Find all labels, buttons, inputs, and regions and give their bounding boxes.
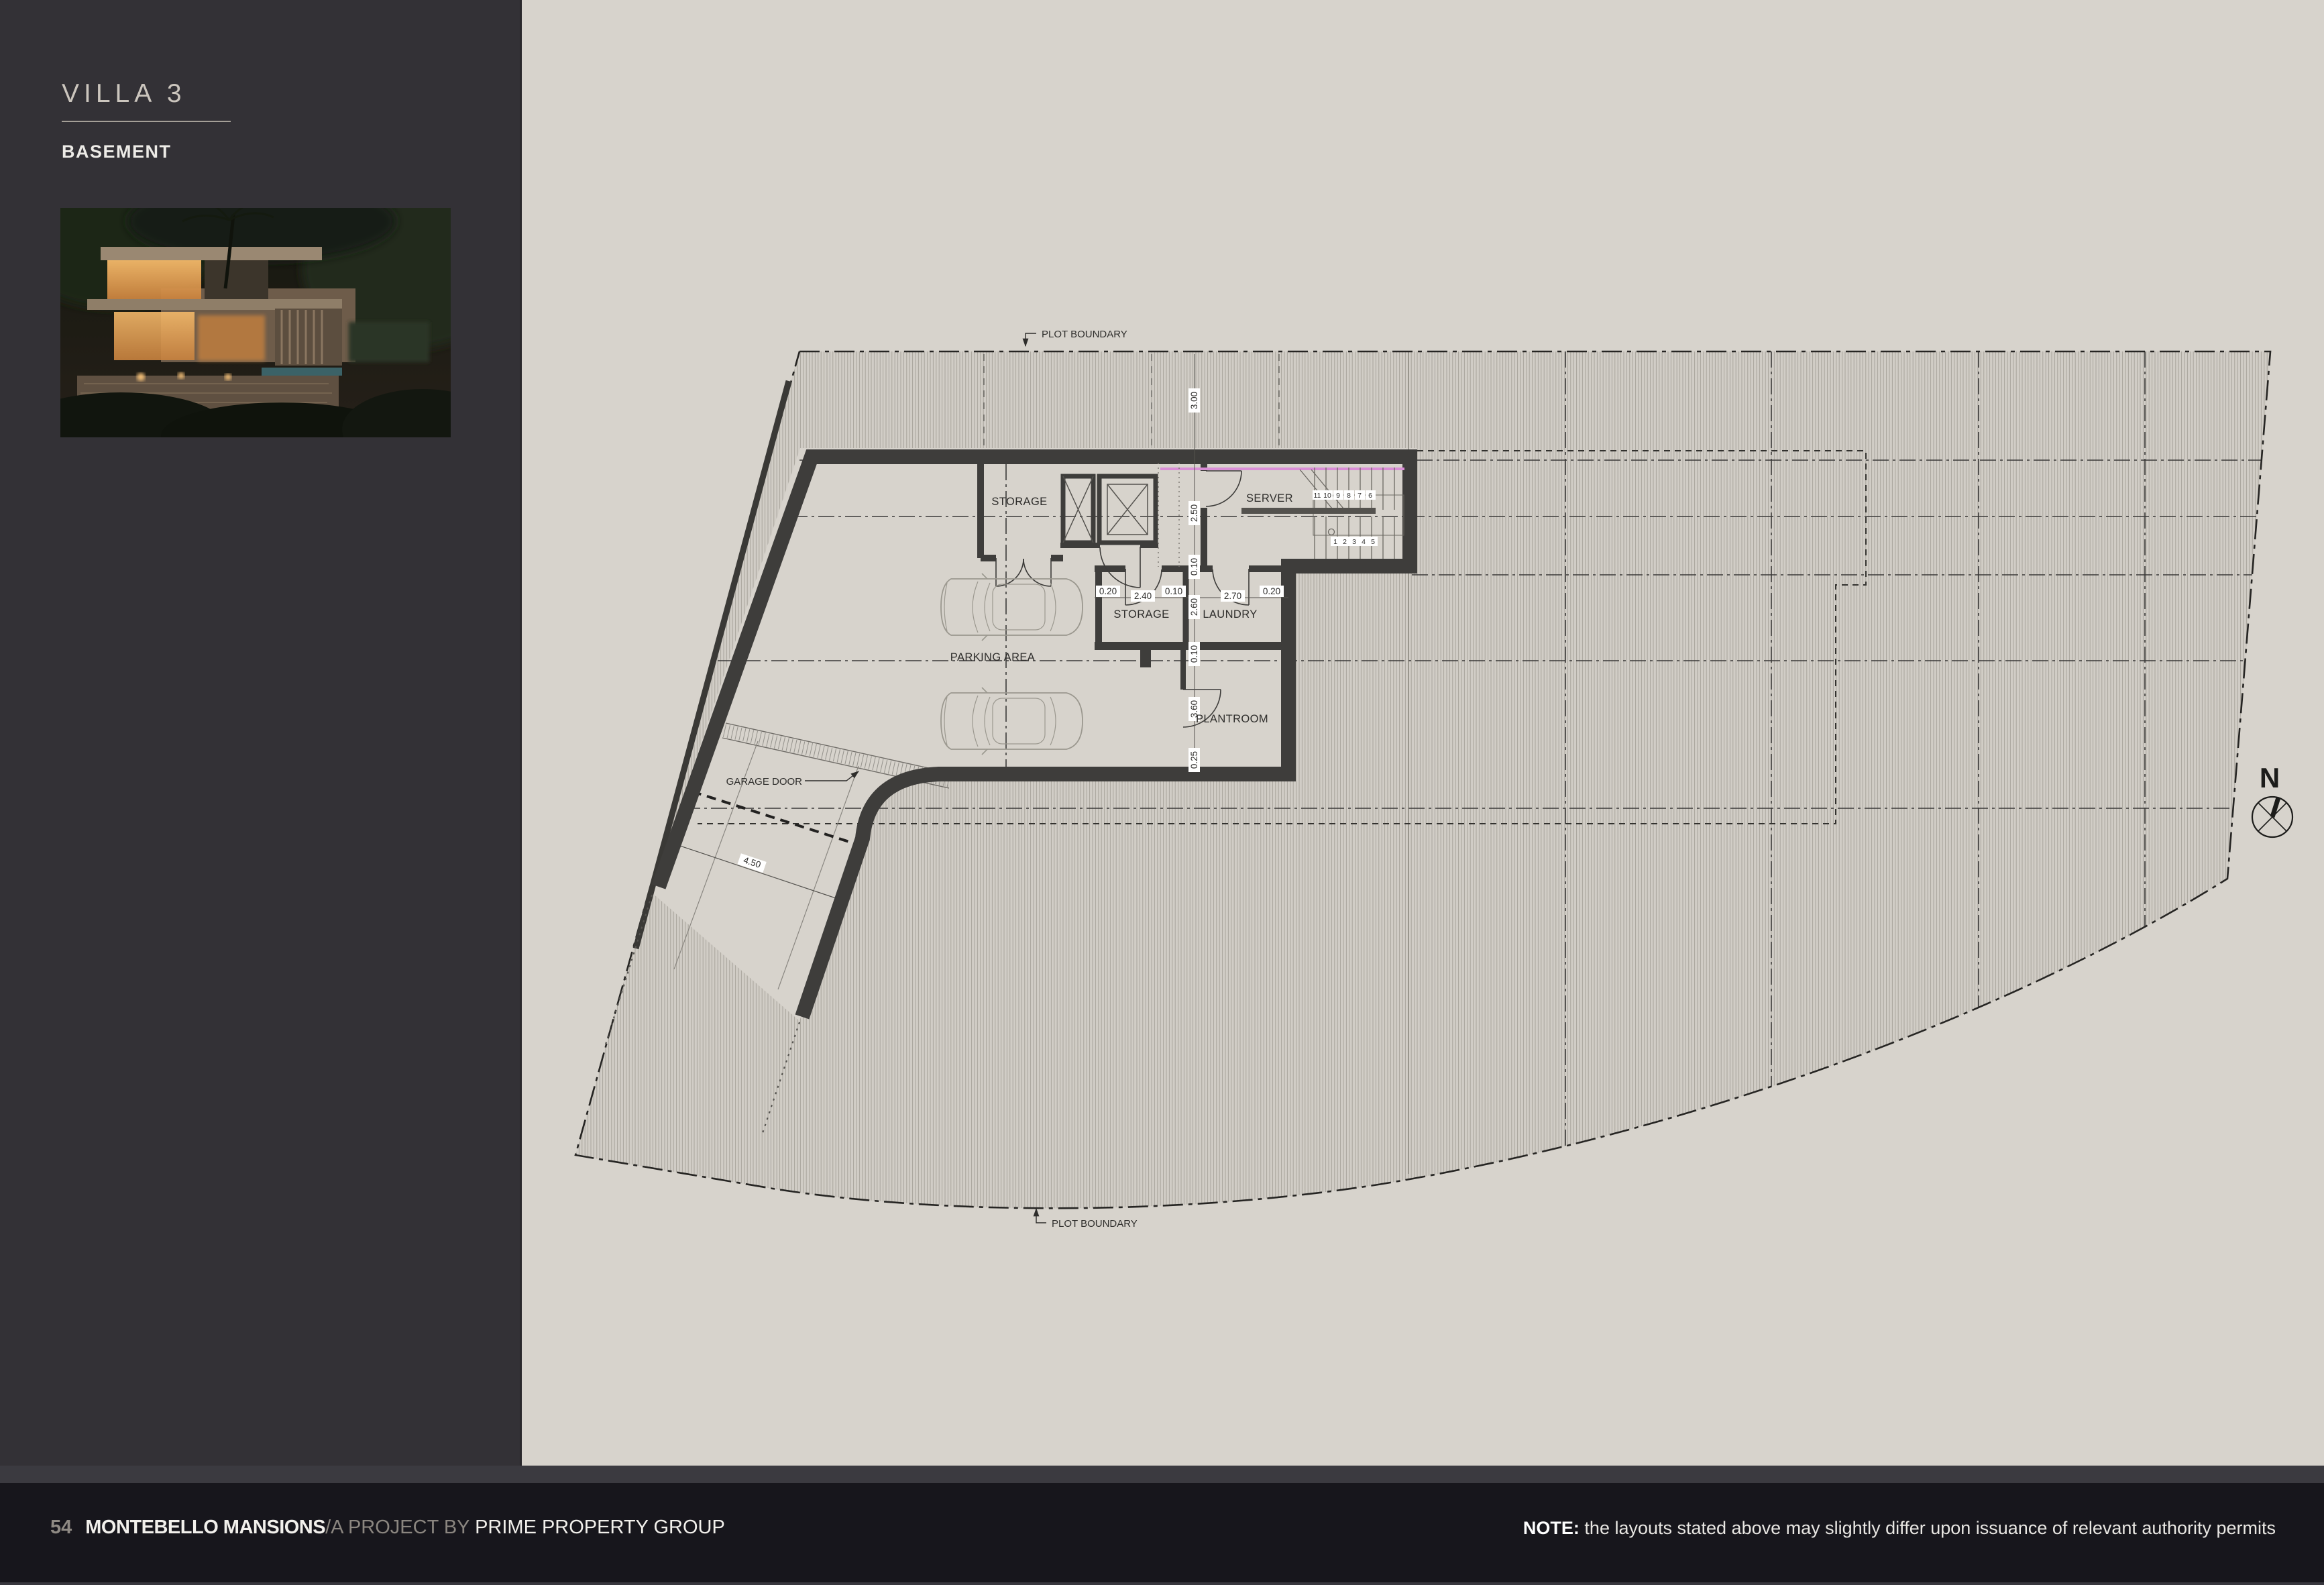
footer-bar: 54MONTEBELLO MANSIONS/A PROJECT BY PRIME… [0,1483,2324,1585]
footer-branding: 54MONTEBELLO MANSIONS/A PROJECT BY PRIME… [50,1517,725,1539]
label-storage-lower: STORAGE [1113,608,1169,620]
label-parking-area: PARKING AREA [950,651,1035,663]
note-text: the layouts stated above may slightly di… [1580,1518,2276,1538]
stair-number: 5 [1371,538,1375,546]
stair-number: 8 [1347,492,1351,500]
label-plot-boundary-top: PLOT BOUNDARY [1042,329,1127,340]
north-label: N [2260,762,2280,794]
dim-wall: 0.10 [1189,558,1199,576]
dim-wall: 0.25 [1189,751,1199,769]
page-canvas: 11 10 9 8 7 6 1 2 3 4 5 3.00 2.50 0.10 2… [0,0,2324,1466]
sidebar: VILLA 3 BASEMENT [0,0,522,1466]
stair-number: 6 [1368,492,1372,500]
stair-number: 1 [1333,538,1337,546]
label-server: SERVER [1246,492,1293,504]
dim-wall: 0.20 [1263,586,1280,596]
dim-storage-depth: 2.60 [1189,598,1199,616]
stair-number: 9 [1336,492,1340,500]
plot-hatch-area [575,351,2270,1208]
title-underline [62,121,231,122]
dim-wall: 0.10 [1165,586,1182,596]
footer-note: NOTE: the layouts stated above may sligh… [1523,1518,2276,1539]
label-laundry: LAUNDRY [1203,608,1257,620]
stair-handrail [1241,508,1376,514]
label-plantroom: PLANTROOM [1196,713,1268,725]
dim-laundry-width: 2.70 [1224,591,1241,601]
dim-storage-width: 2.40 [1134,591,1152,601]
dim-wall: 0.10 [1189,645,1199,663]
label-garage-door: GARAGE DOOR [726,776,803,787]
label-plot-boundary-bottom: PLOT BOUNDARY [1052,1218,1138,1229]
company-name: PRIME PROPERTY GROUP [475,1517,725,1538]
dim-wall: 0.20 [1099,586,1117,596]
stair-number: 10 [1323,492,1331,500]
note-label: NOTE: [1523,1518,1580,1538]
stair-number: 7 [1358,492,1362,500]
floor-subtitle: BASEMENT [62,142,172,162]
dim-plot-offset: 3.00 [1189,392,1199,409]
stair-number: 2 [1343,538,1347,546]
dim-corridor: 2.50 [1189,504,1199,522]
label-storage-upper: STORAGE [991,496,1047,508]
page-title: VILLA 3 [62,79,186,109]
villa-night-photo [60,208,451,437]
footer-divider-strip [0,1466,2324,1483]
stair-number: 4 [1362,538,1366,546]
north-compass: N [2252,762,2292,837]
stair-number: 11 [1314,492,1321,500]
brand-name: MONTEBELLO MANSIONS [85,1517,325,1538]
stair-number: 3 [1352,538,1356,546]
project-by-text: /A PROJECT BY [325,1517,475,1538]
page-number: 54 [50,1517,72,1538]
